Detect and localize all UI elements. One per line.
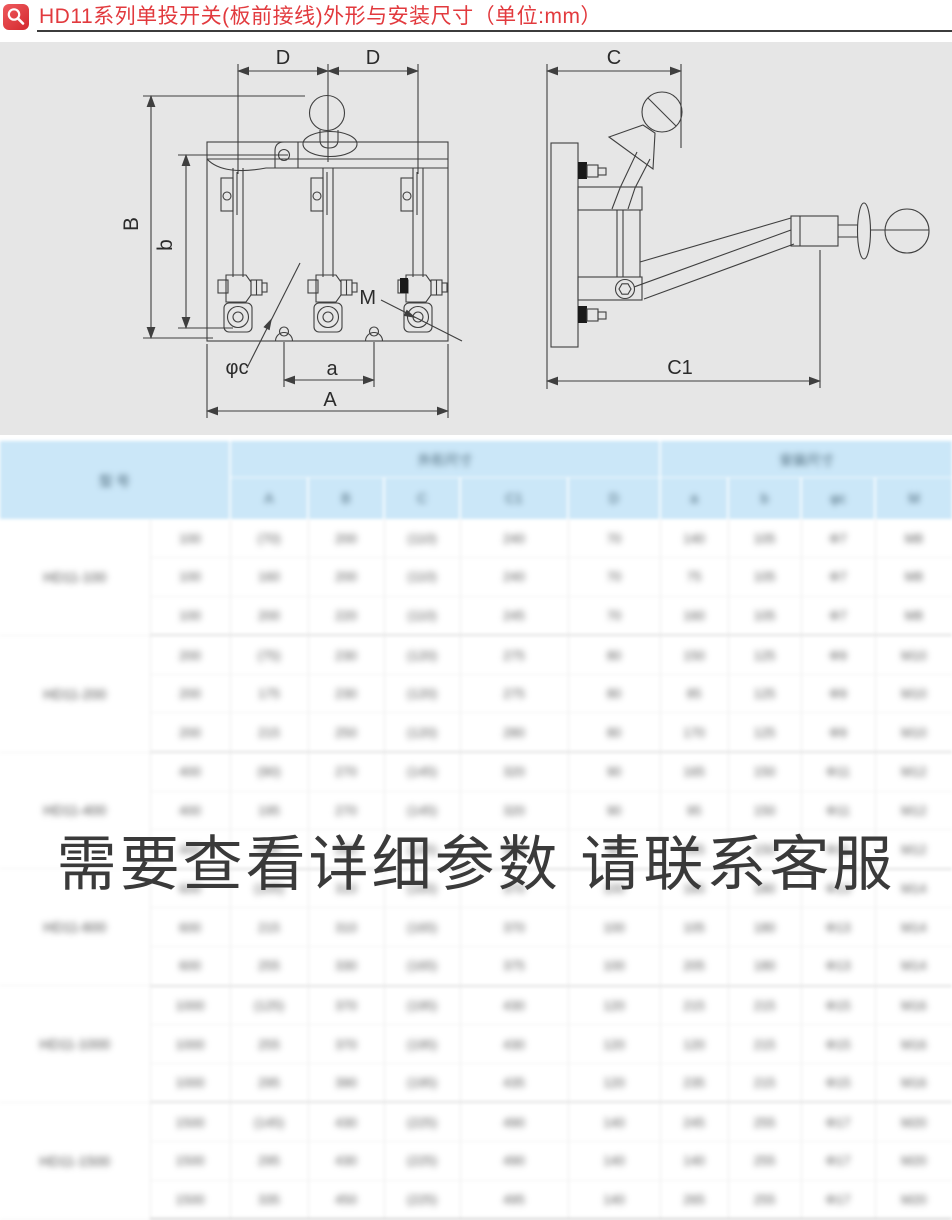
value-cell: (120): [384, 635, 460, 674]
value-cell: (110): [384, 596, 460, 635]
value-cell: 295: [230, 1063, 308, 1102]
value-cell: Φ11: [801, 791, 875, 830]
value-cell: M10: [875, 674, 952, 713]
value-cell: 370: [308, 1025, 384, 1064]
value-cell: 100: [568, 947, 660, 986]
value-cell: 125: [728, 713, 801, 752]
value-cell: 120: [660, 1025, 728, 1064]
value-cell: 215: [728, 1063, 801, 1102]
value-cell: 140: [568, 1180, 660, 1219]
value-cell: 220: [308, 596, 384, 635]
value-cell: M14: [875, 947, 952, 986]
value-cell: M8: [875, 558, 952, 597]
value-cell: 270: [308, 752, 384, 791]
value-cell: Φ9: [801, 635, 875, 674]
value-cell: 105: [728, 519, 801, 558]
table-row: HD11-400400(90)270(145)32090165150Φ11M12: [0, 752, 952, 791]
dim-label-C1: C1: [667, 357, 693, 379]
watermark-text: 需要查看详细参数 请联系客服: [0, 833, 952, 897]
value-cell: 430: [460, 1025, 568, 1064]
model-cell: HD11-1500: [0, 1102, 150, 1219]
dim-label-b: b: [154, 239, 177, 251]
value-cell: 170: [660, 713, 728, 752]
install-dims-group-header: 安装尺寸: [660, 441, 952, 478]
value-cell: 270: [308, 791, 384, 830]
value-cell: 90: [568, 791, 660, 830]
value-cell: (165): [384, 908, 460, 947]
value-cell: M12: [875, 791, 952, 830]
value-cell: 330: [308, 947, 384, 986]
dim-header-D: D: [568, 478, 660, 520]
value-cell: 275: [460, 674, 568, 713]
value-cell: 160: [660, 596, 728, 635]
value-cell: 95: [660, 791, 728, 830]
model-cell: HD11-200: [0, 635, 150, 752]
value-cell: Φ13: [801, 908, 875, 947]
value-cell: 255: [728, 1142, 801, 1181]
value-cell: 320: [460, 791, 568, 830]
value-cell: 280: [460, 713, 568, 752]
value-cell: M8: [875, 519, 952, 558]
value-cell: 125: [728, 635, 801, 674]
value-cell: 390: [308, 1063, 384, 1102]
value-cell: Φ17: [801, 1142, 875, 1181]
value-cell: (110): [384, 519, 460, 558]
value-cell: 200: [150, 635, 230, 674]
value-cell: 370: [308, 986, 384, 1025]
value-cell: 100: [150, 558, 230, 597]
value-cell: 75: [660, 558, 728, 597]
outline-dims-group-header: 外形尺寸: [230, 441, 660, 478]
value-cell: Φ15: [801, 986, 875, 1025]
value-cell: Φ15: [801, 1063, 875, 1102]
value-cell: 275: [460, 635, 568, 674]
magnifier-icon: [3, 4, 29, 30]
value-cell: (165): [384, 947, 460, 986]
value-cell: 100: [568, 908, 660, 947]
table-row: HD11-100100(70)200(110)24070140105Φ7M8: [0, 519, 952, 558]
value-cell: M12: [875, 752, 952, 791]
value-cell: 70: [568, 558, 660, 597]
dim-label-d-right: D: [366, 47, 380, 69]
value-cell: 140: [568, 1142, 660, 1181]
table-row: HD11-15001500(145)430(225)490140245255Φ1…: [0, 1102, 952, 1141]
value-cell: 435: [460, 1063, 568, 1102]
value-cell: 490: [460, 1102, 568, 1141]
dim-label-a: a: [326, 358, 338, 380]
value-cell: 200: [230, 596, 308, 635]
value-cell: 1500: [150, 1102, 230, 1141]
value-cell: 200: [150, 713, 230, 752]
value-cell: 255: [728, 1102, 801, 1141]
value-cell: 140: [660, 1142, 728, 1181]
value-cell: M20: [875, 1142, 952, 1181]
value-cell: 80: [568, 635, 660, 674]
value-cell: Φ9: [801, 674, 875, 713]
value-cell: 1500: [150, 1142, 230, 1181]
value-cell: 1000: [150, 1063, 230, 1102]
value-cell: 180: [728, 908, 801, 947]
value-cell: 495: [460, 1180, 568, 1219]
dim-label-d-left: D: [276, 47, 290, 69]
dim-header-b: b: [728, 478, 801, 520]
value-cell: 1000: [150, 986, 230, 1025]
value-cell: 100: [150, 596, 230, 635]
value-cell: (120): [384, 674, 460, 713]
value-cell: 250: [308, 713, 384, 752]
value-cell: 140: [660, 519, 728, 558]
model-cell: HD11-1000: [0, 986, 150, 1103]
value-cell: Φ11: [801, 752, 875, 791]
dim-header-a: a: [660, 478, 728, 520]
value-cell: (145): [384, 752, 460, 791]
value-cell: 105: [660, 908, 728, 947]
value-cell: 175: [230, 674, 308, 713]
title-divider: [37, 30, 952, 32]
value-cell: 195: [230, 791, 308, 830]
value-cell: 140: [568, 1102, 660, 1141]
technical-drawing-panel: D D B b M φc a A C C1: [0, 42, 952, 435]
dim-label-C: C: [607, 47, 621, 69]
dim-header-M: M: [875, 478, 952, 520]
value-cell: 150: [728, 791, 801, 830]
value-cell: (225): [384, 1142, 460, 1181]
value-cell: (225): [384, 1102, 460, 1141]
value-cell: 400: [150, 791, 230, 830]
value-cell: (90): [230, 752, 308, 791]
value-cell: 255: [230, 1025, 308, 1064]
value-cell: M20: [875, 1102, 952, 1141]
value-cell: 200: [308, 519, 384, 558]
value-cell: 230: [308, 635, 384, 674]
table-row: HD11-10001000(125)370(195)430120215215Φ1…: [0, 986, 952, 1025]
value-cell: 600: [150, 947, 230, 986]
value-cell: M10: [875, 635, 952, 674]
value-cell: (195): [384, 1063, 460, 1102]
value-cell: (120): [384, 713, 460, 752]
value-cell: 1000: [150, 1025, 230, 1064]
value-cell: (225): [384, 1180, 460, 1219]
page-title: HD11系列单投开关(板前接线)外形与安装尺寸（单位:mm）: [39, 4, 602, 30]
value-cell: 215: [728, 1025, 801, 1064]
value-cell: 450: [308, 1180, 384, 1219]
value-cell: 240: [460, 558, 568, 597]
value-cell: 230: [308, 674, 384, 713]
value-cell: 105: [728, 596, 801, 635]
value-cell: 490: [460, 1142, 568, 1181]
value-cell: 295: [230, 1142, 308, 1181]
model-column-header: 型 号: [0, 441, 230, 519]
dim-header-C1: C1: [460, 478, 568, 520]
value-cell: (195): [384, 986, 460, 1025]
value-cell: 430: [308, 1102, 384, 1141]
value-cell: M16: [875, 1025, 952, 1064]
value-cell: 80: [568, 713, 660, 752]
value-cell: Φ7: [801, 519, 875, 558]
dim-header-C: C: [384, 478, 460, 520]
value-cell: 235: [660, 1063, 728, 1102]
value-cell: (75): [230, 635, 308, 674]
value-cell: M10: [875, 713, 952, 752]
value-cell: 85: [660, 674, 728, 713]
value-cell: M16: [875, 986, 952, 1025]
value-cell: 400: [150, 752, 230, 791]
value-cell: (145): [230, 1102, 308, 1141]
value-cell: 375: [460, 947, 568, 986]
value-cell: 215: [230, 908, 308, 947]
value-cell: 80: [568, 674, 660, 713]
value-cell: 215: [230, 713, 308, 752]
value-cell: (145): [384, 791, 460, 830]
value-cell: M8: [875, 596, 952, 635]
value-cell: 125: [728, 674, 801, 713]
dim-header-φc: φc: [801, 478, 875, 520]
dim-label-B: B: [120, 217, 143, 231]
value-cell: 245: [460, 596, 568, 635]
value-cell: 320: [460, 752, 568, 791]
dim-label-phi-c: φc: [226, 357, 249, 379]
value-cell: 200: [308, 558, 384, 597]
value-cell: 120: [568, 1063, 660, 1102]
value-cell: 120: [568, 986, 660, 1025]
value-cell: (110): [384, 558, 460, 597]
value-cell: 335: [230, 1180, 308, 1219]
value-cell: 100: [150, 519, 230, 558]
dim-header-A: A: [230, 478, 308, 520]
value-cell: M20: [875, 1180, 952, 1219]
value-cell: 240: [460, 519, 568, 558]
value-cell: 265: [660, 1180, 728, 1219]
value-cell: Φ13: [801, 947, 875, 986]
value-cell: 90: [568, 752, 660, 791]
value-cell: 215: [728, 986, 801, 1025]
value-cell: 245: [660, 1102, 728, 1141]
value-cell: 160: [230, 558, 308, 597]
value-cell: 255: [728, 1180, 801, 1219]
value-cell: 70: [568, 519, 660, 558]
value-cell: 150: [728, 752, 801, 791]
value-cell: Φ17: [801, 1180, 875, 1219]
dimension-drawing: D D B b M φc a A C C1: [0, 42, 952, 435]
value-cell: 150: [660, 635, 728, 674]
dim-header-B: B: [308, 478, 384, 520]
value-cell: (125): [230, 986, 308, 1025]
value-cell: (70): [230, 519, 308, 558]
value-cell: 370: [460, 908, 568, 947]
value-cell: 70: [568, 596, 660, 635]
value-cell: 215: [660, 986, 728, 1025]
table-row: HD11-200200(75)230(120)27580150125Φ9M10: [0, 635, 952, 674]
value-cell: 430: [460, 986, 568, 1025]
value-cell: (195): [384, 1025, 460, 1064]
value-cell: M16: [875, 1063, 952, 1102]
value-cell: 200: [150, 674, 230, 713]
value-cell: 310: [308, 908, 384, 947]
value-cell: Φ9: [801, 713, 875, 752]
dim-label-M: M: [359, 287, 376, 309]
model-cell: HD11-100: [0, 519, 150, 635]
value-cell: 105: [728, 558, 801, 597]
value-cell: Φ7: [801, 558, 875, 597]
value-cell: 1500: [150, 1180, 230, 1219]
value-cell: 205: [660, 947, 728, 986]
dim-label-A: A: [323, 389, 337, 411]
value-cell: 255: [230, 947, 308, 986]
value-cell: 180: [728, 947, 801, 986]
value-cell: 165: [660, 752, 728, 791]
value-cell: Φ17: [801, 1102, 875, 1141]
value-cell: M14: [875, 908, 952, 947]
value-cell: 430: [308, 1142, 384, 1181]
value-cell: Φ7: [801, 596, 875, 635]
value-cell: 600: [150, 908, 230, 947]
value-cell: Φ15: [801, 1025, 875, 1064]
value-cell: 120: [568, 1025, 660, 1064]
